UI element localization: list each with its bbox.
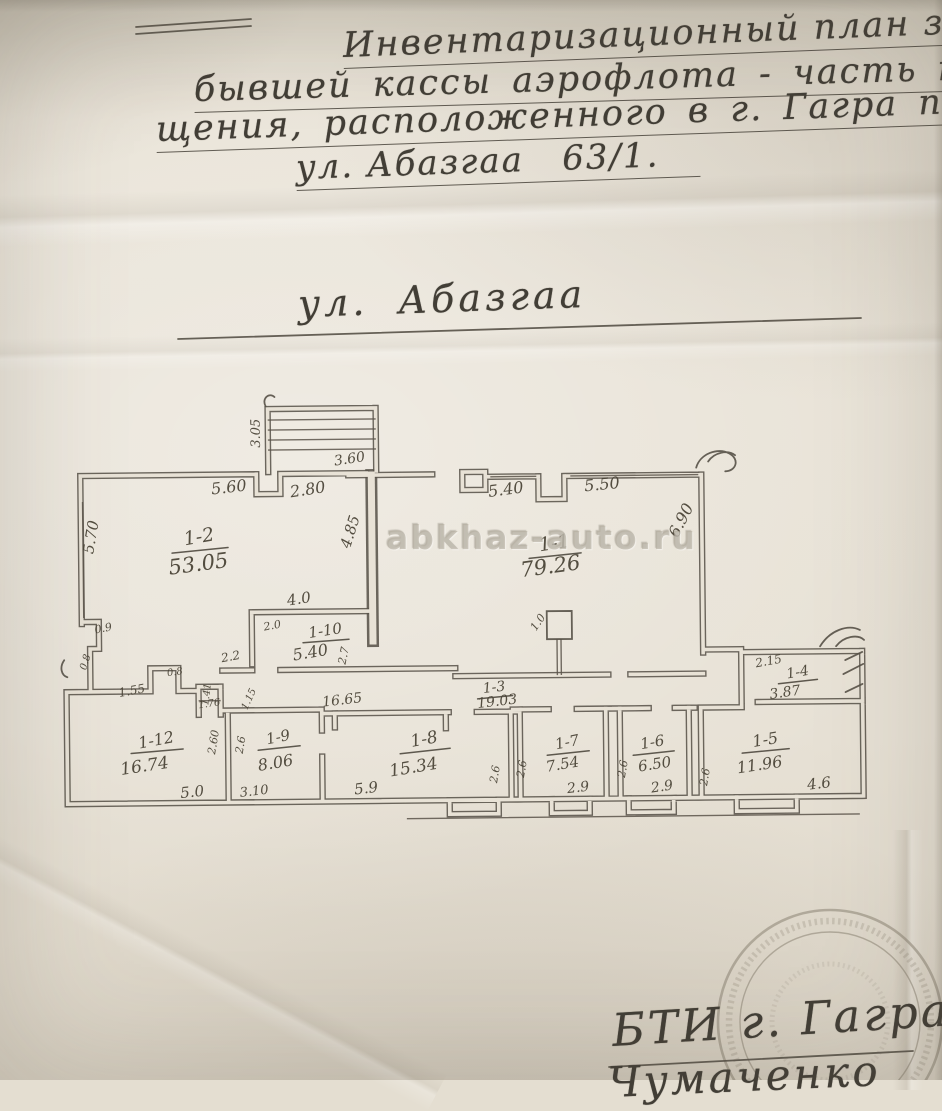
- dim-stairs-side: 3.05: [249, 419, 264, 448]
- dim-r10-w: 2.0: [261, 618, 282, 634]
- room-1-9-area: 8.06: [256, 750, 294, 775]
- dim-r7-h: 2.6: [514, 759, 530, 779]
- floor-plan: 1-2 53.05 1-1 79.26 1-10 5.40 1-3 19.03 …: [59, 389, 866, 822]
- dim-r5-w: 4.6: [805, 773, 832, 794]
- dim-r6-w: 2.9: [649, 777, 674, 796]
- dim-r9-w: 3.10: [239, 783, 269, 801]
- dim-n155: 1.55: [117, 681, 146, 700]
- room-1-8-id: 1-8: [409, 727, 440, 752]
- photo-edge-right: [934, 0, 942, 1080]
- room-1-2-id: 1-2: [182, 524, 216, 551]
- room-1-7-area: 7.54: [545, 752, 581, 775]
- room-1-5-area: 11.96: [735, 752, 783, 778]
- dim-n08b: 0.8: [166, 666, 183, 679]
- dim-mid-wall: 4.85: [336, 513, 363, 551]
- street-underline: [178, 318, 861, 339]
- photo-edge-top: [0, 0, 942, 12]
- dim-r12-h: 2.60: [205, 729, 222, 756]
- dim-top-a: 5.60: [210, 476, 248, 499]
- room-1-7-id: 1-7: [553, 731, 581, 754]
- dim-top-b: 2.80: [288, 477, 327, 501]
- dim-column: 1.0: [528, 611, 549, 633]
- room-1-10-area: 5.40: [291, 640, 329, 665]
- dim-r12-w: 5.0: [179, 782, 205, 802]
- walls-inner: [64, 403, 864, 818]
- dim-n22: 2.2: [219, 648, 241, 665]
- room-1-6-area: 6.50: [637, 753, 673, 776]
- page-top-line-fragment: [136, 19, 251, 34]
- room-1-12-id: 1-12: [137, 727, 176, 752]
- room-1-5-id: 1-5: [751, 728, 780, 751]
- dim-r10-top: 4.0: [285, 588, 313, 610]
- signature-partial: Чумаченко: [607, 1046, 882, 1107]
- dim-r1-top-a: 5.40: [487, 477, 525, 501]
- watermark: abkhaz-auto.ru: [386, 518, 697, 557]
- walls: [64, 403, 864, 818]
- dim-hall-len: 16.65: [321, 690, 363, 711]
- dim-r8-h: 2.6: [487, 764, 503, 784]
- dim-r1-top-b: 5.50: [583, 473, 620, 495]
- dim-r9-h: 2.6: [233, 735, 249, 755]
- dim-r10-h: 2.7: [335, 646, 351, 667]
- room-1-6-id: 1-6: [639, 731, 666, 753]
- dim-r6-h: 2.6: [615, 759, 631, 779]
- room-1-4-id: 1-4: [785, 663, 810, 683]
- dim-stairs-top: 3.60: [333, 449, 366, 469]
- central-wall-inner: [371, 475, 373, 641]
- dim-r5-h: 2.6: [697, 767, 713, 787]
- dim-n09: 0.9: [93, 620, 113, 636]
- room-1-9-id: 1-9: [264, 726, 292, 749]
- room-1-10-id: 1-10: [307, 619, 343, 642]
- dim-r7-w: 2.9: [565, 779, 590, 798]
- room-1-8-area: 15.34: [388, 754, 439, 782]
- room-1-12-area: 16.74: [119, 753, 170, 780]
- dim-r8-w: 5.9: [353, 778, 379, 799]
